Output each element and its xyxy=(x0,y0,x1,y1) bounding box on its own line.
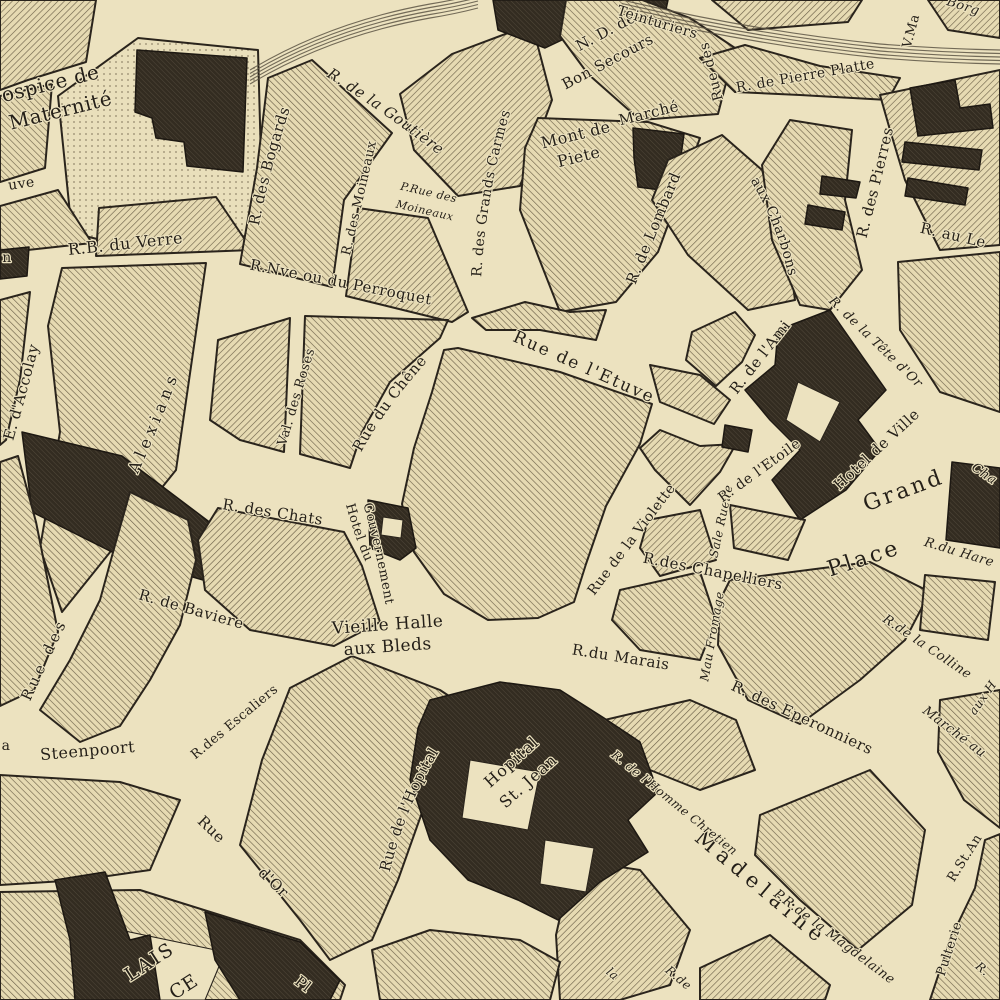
street-label-v-ma: V.Ma xyxy=(900,13,924,51)
city-block xyxy=(730,505,805,560)
antique-map-image: ospice deMaternitéR. de la GoutièreR. de… xyxy=(0,0,1000,1000)
city-block xyxy=(0,775,180,885)
map-canvas: ospice deMaternitéR. de la GoutièreR. de… xyxy=(0,0,1000,1000)
courtyard xyxy=(381,517,403,538)
courtyard xyxy=(540,840,594,892)
street-label-aux-bleds: aux Bleds xyxy=(343,634,432,660)
street-label-uve: uve xyxy=(7,174,36,194)
dark-building xyxy=(820,176,860,198)
street-label-grand: Grand xyxy=(860,465,948,517)
street-label-a: a xyxy=(2,738,11,754)
dark-building xyxy=(722,425,752,452)
city-block xyxy=(612,572,716,660)
city-block xyxy=(920,575,995,640)
street-label-rue: Rue xyxy=(194,812,229,847)
street-label-steenpoort: Steenpoort xyxy=(39,737,136,764)
city-block xyxy=(210,318,290,452)
city-block xyxy=(346,208,468,322)
city-block xyxy=(712,0,862,30)
city-block xyxy=(372,930,560,1000)
city-block xyxy=(755,770,925,950)
street-label-n: n xyxy=(2,250,12,266)
city-block xyxy=(700,935,830,1000)
